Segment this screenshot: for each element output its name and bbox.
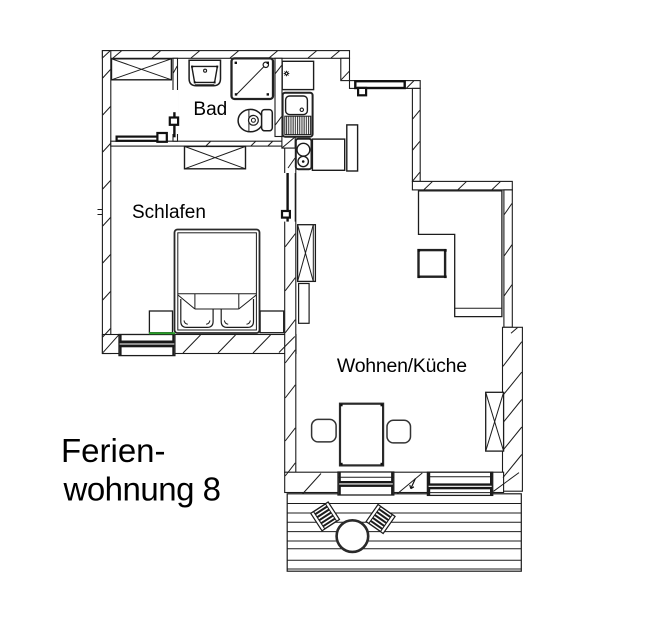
svg-text:Ferien-: Ferien- [61, 432, 166, 469]
svg-text:Wohnen/Küche: Wohnen/Küche [337, 355, 467, 377]
svg-text:wohnung 8: wohnung 8 [63, 471, 221, 508]
svg-text:Schlafen: Schlafen [132, 202, 206, 223]
svg-text:Bad: Bad [193, 99, 227, 120]
